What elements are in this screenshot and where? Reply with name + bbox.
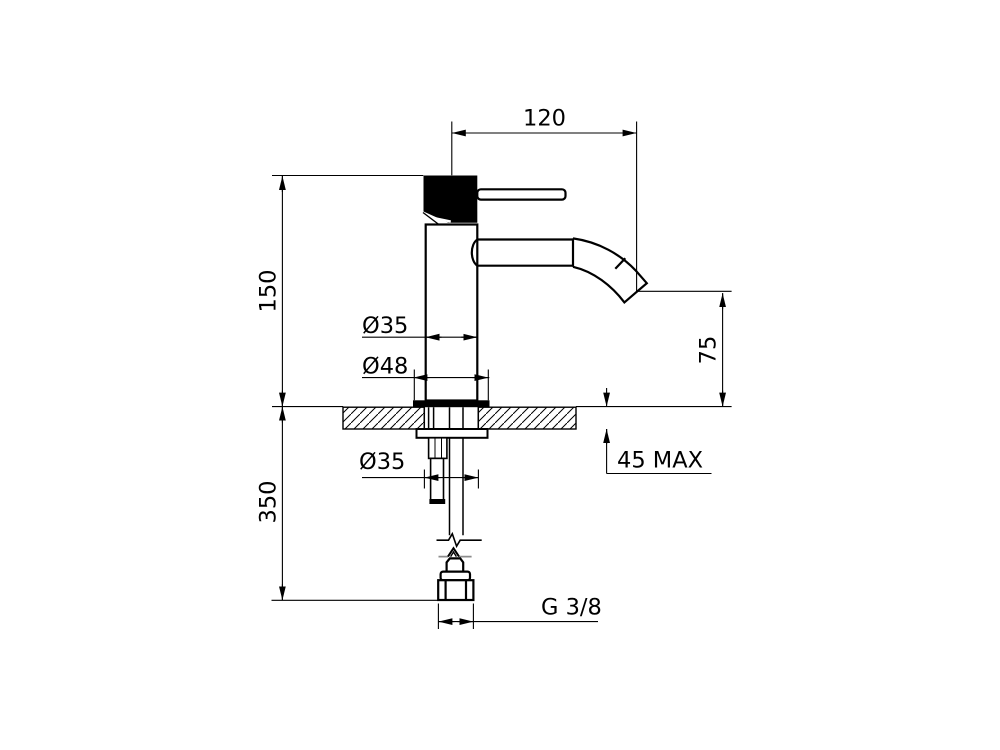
- dim-shank-diameter-label: Ø35: [359, 449, 405, 475]
- countertop-left: [343, 407, 424, 429]
- faucet-body: [426, 225, 478, 401]
- dim-base-diameter-label: Ø48: [362, 354, 408, 380]
- extension-lines: [438, 604, 473, 630]
- hose-break-upper: [437, 534, 482, 546]
- countertop-right: [478, 407, 576, 429]
- dim-below-deck-length-label: 350: [255, 481, 281, 524]
- stud-nut-cap: [429, 499, 445, 504]
- dim-spout-height-label: 75: [695, 336, 721, 365]
- dim-spout-height: 75: [576, 291, 732, 406]
- stud-lower: [431, 458, 444, 500]
- dim-deck-thickness: 45 MAX: [607, 388, 712, 474]
- dim-body-diameter-label: Ø35: [362, 313, 408, 339]
- faucet-dimension-drawing: 120 150 350 Ø35 Ø48 75: [0, 0, 1000, 750]
- supply-hose: [450, 407, 464, 535]
- dim-spout-reach-label: 120: [523, 106, 566, 132]
- connector-collar: [441, 572, 470, 581]
- countertop: [343, 407, 576, 429]
- dim-deck-thickness-label: 45 MAX: [617, 448, 703, 474]
- mounting-washer: [417, 429, 488, 438]
- spout-straight: [472, 240, 573, 266]
- handle-lever: [477, 189, 565, 199]
- stud-in-hole: [429, 407, 434, 429]
- spout-curve: [573, 238, 647, 302]
- connector-nut: [438, 580, 473, 600]
- hose-connector: [438, 558, 473, 600]
- mounting-stud: [429, 438, 447, 504]
- faucet-object: [272, 176, 647, 601]
- connector-olive: [447, 558, 464, 571]
- dim-height-above-deck-label: 150: [255, 270, 281, 313]
- dim-thread-size-label: G 3/8: [541, 595, 602, 621]
- dim-shank-diameter: Ø35: [359, 449, 478, 489]
- technical-drawing-canvas: 120 150 350 Ø35 Ø48 75: [0, 0, 1000, 750]
- base-flange: [413, 400, 490, 407]
- handle-knob: [424, 176, 478, 223]
- aerator-tick: [615, 258, 625, 269]
- dim-below-deck-length: 350: [255, 407, 282, 601]
- shank-edges: [424, 407, 478, 429]
- stud-upper: [429, 438, 447, 459]
